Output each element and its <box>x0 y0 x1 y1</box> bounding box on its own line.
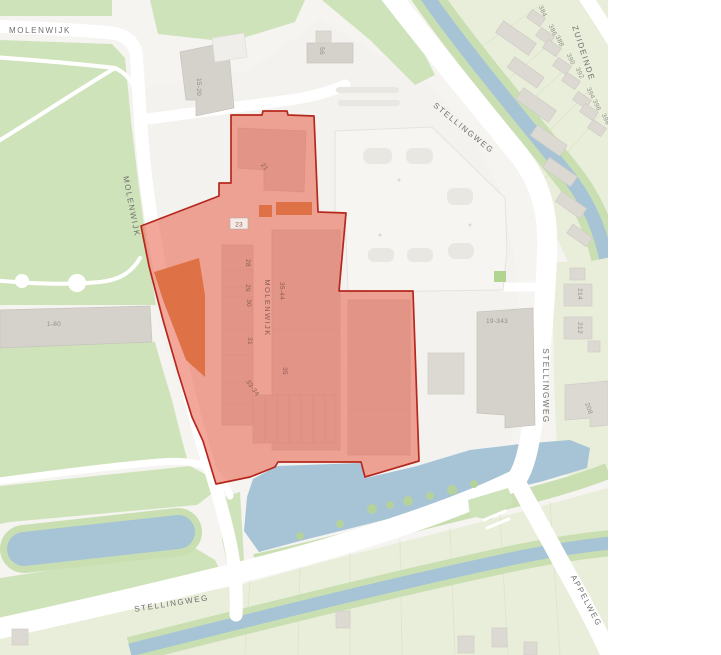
parcel-label-23: 23 <box>235 222 243 229</box>
parcel-label-29: 29 <box>244 284 251 292</box>
building-label-15-20: 15-20 <box>195 78 202 96</box>
building-label-56: 56 <box>318 47 325 55</box>
road-label-molenwijk-top: MOLENWIJK <box>9 26 71 35</box>
empty-margin <box>608 0 721 655</box>
shed-2 <box>458 636 474 653</box>
parcel-label-35: 35 <box>281 367 288 375</box>
building-214-annex <box>570 268 585 280</box>
parcel-label-31: 31 <box>246 337 253 345</box>
shed-4 <box>524 642 537 655</box>
shed-1 <box>336 611 350 628</box>
building-small-north <box>212 33 247 62</box>
green-court <box>494 271 506 282</box>
park-circle-1 <box>15 274 29 288</box>
building-label-1-80: 1-80 <box>47 321 61 328</box>
building-east-of-parcel <box>428 353 464 394</box>
building-1-80 <box>0 306 152 348</box>
building-212-annex <box>588 341 600 352</box>
parcel-label-30: 30 <box>245 299 252 307</box>
shed-3 <box>492 628 507 647</box>
building-label-214: 214 <box>576 288 583 300</box>
map-viewport[interactable]: 23 MOLENWIJKMOLENWIJKSTELLINGWEGSTELLING… <box>0 0 721 655</box>
park-circle-2 <box>68 274 86 292</box>
map-canvas[interactable]: 23 MOLENWIJKMOLENWIJKSTELLINGWEGSTELLING… <box>0 0 721 655</box>
building-56-annex <box>316 31 331 43</box>
building-56 <box>307 43 353 63</box>
parcel-label-28: 28 <box>244 259 251 267</box>
canal-west-basin <box>24 532 178 549</box>
shed-5 <box>12 629 28 645</box>
building-label-212: 212 <box>576 322 583 334</box>
parcel-label-molenwijk-inner: MOLENWIJK <box>263 279 272 336</box>
building-19-343 <box>477 308 535 428</box>
parcel-label-35-44: 35-44 <box>278 282 285 300</box>
building-label-19-343: 19-343 <box>486 318 508 325</box>
parcel-label-23-box: 23 <box>230 218 248 229</box>
road-label-stellingweg-right: STELLINGWEG <box>541 348 550 423</box>
